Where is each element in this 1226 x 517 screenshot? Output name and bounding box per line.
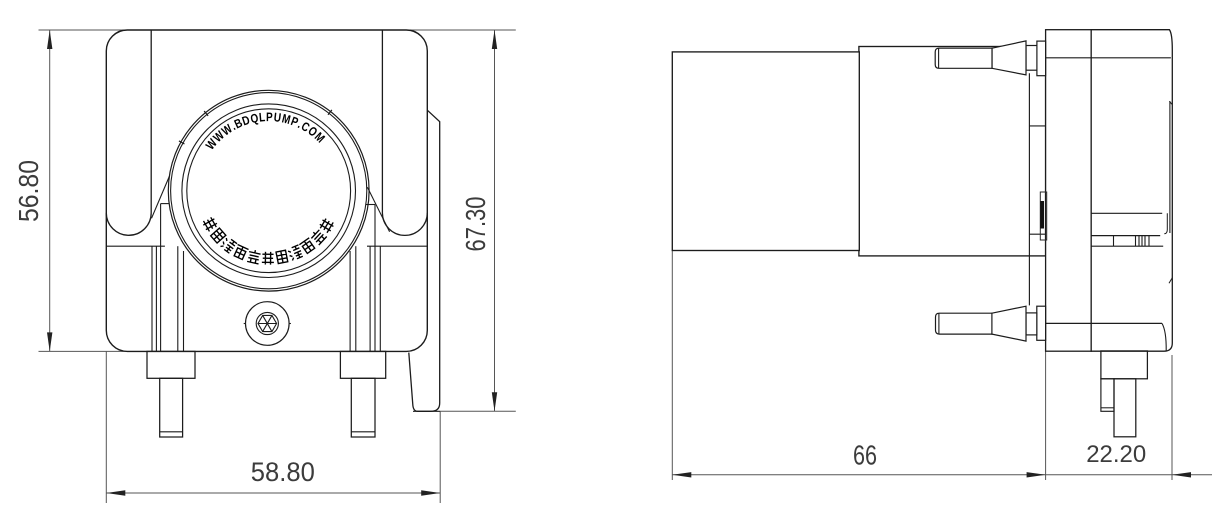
svg-text:P: P [266, 111, 273, 124]
svg-text:66: 66 [853, 440, 877, 471]
svg-text:L: L [259, 111, 266, 125]
svg-text:56.80: 56.80 [13, 160, 44, 222]
svg-text:67.30: 67.30 [460, 197, 491, 252]
svg-text:58.80: 58.80 [251, 457, 315, 487]
svg-text:22.20: 22.20 [1086, 441, 1146, 468]
